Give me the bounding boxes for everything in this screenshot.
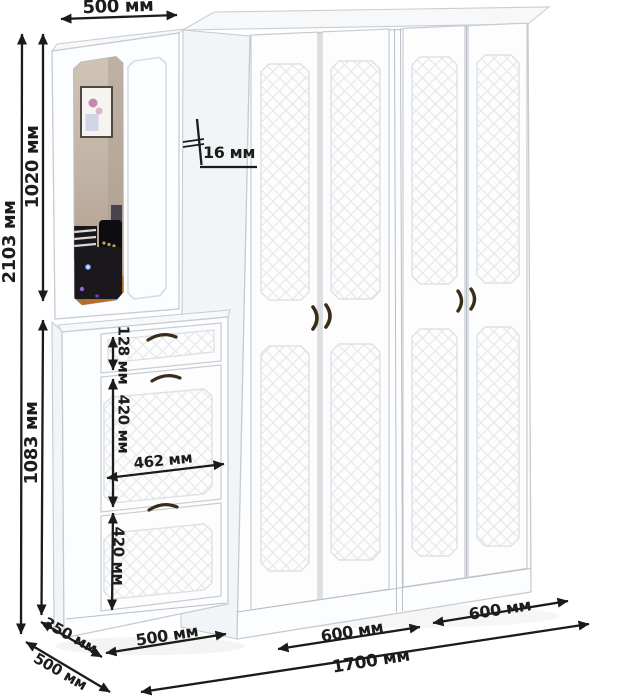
furniture-illustration bbox=[0, 0, 637, 700]
dim-door-upper-height-label: 420 мм bbox=[116, 395, 131, 454]
mirror-cabinet bbox=[52, 29, 184, 319]
lattice-panel bbox=[331, 61, 380, 299]
dim-upper-section-label: 1020 мм bbox=[24, 126, 42, 209]
dim-lower-section-label: 1083 мм bbox=[23, 402, 41, 485]
arrow-total-height bbox=[21, 34, 22, 634]
furniture-dimension-diagram: 500 мм 2103 мм 1020 мм 1083 мм 128 мм 42… bbox=[0, 0, 637, 700]
dark-cabinet bbox=[72, 247, 122, 299]
wardrobe bbox=[181, 7, 549, 639]
lattice-panel bbox=[261, 64, 309, 300]
dim-panel-thickness-label: 16 мм bbox=[203, 145, 255, 161]
dim-total-height-label: 2103 мм bbox=[1, 201, 19, 284]
dim-drawer-height-label: 128 мм bbox=[116, 326, 131, 385]
lattice-panel bbox=[412, 329, 457, 556]
lattice-panel bbox=[477, 327, 519, 546]
lattice-panel bbox=[477, 55, 519, 283]
dim-door-lower-height-label: 420 мм bbox=[111, 527, 126, 586]
lattice-panel bbox=[261, 346, 309, 571]
dim-top-width-label: 500 мм bbox=[82, 0, 153, 17]
lattice-panel bbox=[331, 344, 380, 560]
lattice-panel bbox=[412, 57, 457, 284]
